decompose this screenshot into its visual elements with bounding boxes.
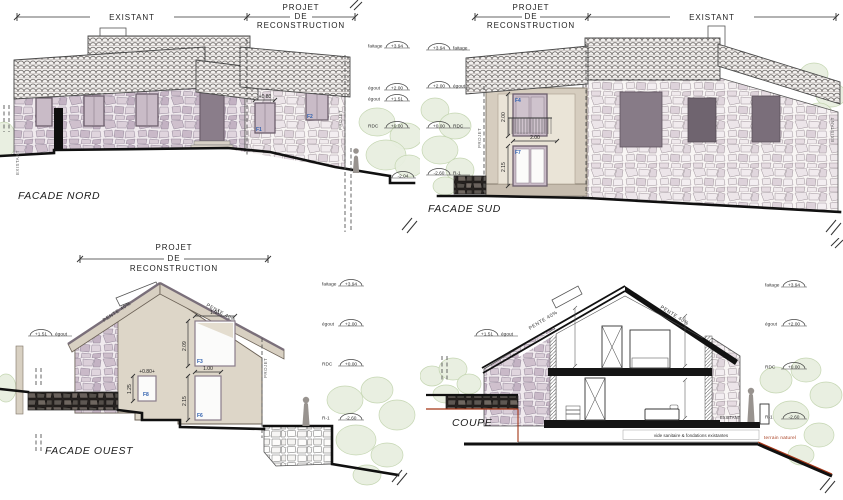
level-label: faitage xyxy=(368,44,383,50)
level-label: R-1 xyxy=(322,416,330,422)
level-value: +2.00 xyxy=(433,84,445,90)
level-marker: égout +2.00 xyxy=(368,84,410,92)
tree xyxy=(359,108,420,177)
coupe-right-wall xyxy=(705,336,740,426)
coupe-terrain: vide sanitaire & fondations existantes t… xyxy=(426,395,832,476)
level-value: -2.60 xyxy=(789,415,800,421)
level-marker: +2.00 égout xyxy=(426,82,470,90)
level-marker: faitage +3.94 xyxy=(368,42,410,50)
level-label: égout xyxy=(453,84,466,90)
facade-ouest-quadrant: PROJET DE RECONSTRUCTION PENTE 40% PENTE… xyxy=(0,238,420,500)
level-value: +2.00 xyxy=(788,322,800,328)
level-value: +0.00 xyxy=(391,124,403,130)
level-label: faitage xyxy=(453,46,468,52)
sud-existing-wall xyxy=(583,78,838,214)
nord-roofs xyxy=(14,28,350,100)
coupe-left-wall xyxy=(484,327,556,426)
level-label: RDC xyxy=(322,362,333,368)
level-value: +3.94 xyxy=(391,44,403,50)
level-marker: égout +2.00 xyxy=(765,320,807,328)
level-value: +0.00 xyxy=(345,362,357,368)
coupe-note-vide: vide sanitaire & fondations existantes xyxy=(654,433,729,438)
nord-side-existant: EXISTANT xyxy=(15,150,20,175)
ouest-side-projet: PROJET xyxy=(263,358,268,378)
nord-title: FACADE NORD xyxy=(18,190,100,202)
architectural-sheet: EXISTANT PROJET DE RECONSTRUCTION xyxy=(0,0,843,500)
level-value: +3.94 xyxy=(433,46,445,52)
nord-projet-label-1: PROJET xyxy=(283,3,320,12)
ouest-header: PROJET DE RECONSTRUCTION xyxy=(77,243,271,273)
coupe-levels: faitage +3.94 égout +2.00 RDC +0.00 R-1 … xyxy=(765,281,807,421)
ouest-projet-label-3: RECONSTRUCTION xyxy=(130,264,218,273)
sud-projet-label-3: RECONSTRUCTION xyxy=(487,21,575,30)
level-label: égout xyxy=(322,322,335,328)
facade-ouest-drawing: PROJET DE RECONSTRUCTION PENTE 40% PENTE… xyxy=(0,238,420,500)
facade-sud-drawing: PROJET DE RECONSTRUCTION EXISTANT xyxy=(420,0,843,238)
facade-nord-quadrant: EXISTANT PROJET DE RECONSTRUCTION xyxy=(0,0,420,238)
ouest-dim-f8-width: +0.80+ xyxy=(139,369,155,375)
sud-window-f7-label: F7 xyxy=(515,150,521,156)
level-label: égout xyxy=(368,86,381,92)
level-label: RDC xyxy=(765,365,776,371)
level-value: +0.00 xyxy=(433,124,445,130)
level-label: égout xyxy=(55,332,68,338)
level-label: égout xyxy=(368,97,381,103)
level-marker: +1.51 égout xyxy=(28,330,72,338)
ouest-window-f8-label: F8 xyxy=(143,392,149,398)
coupe-interior xyxy=(566,306,687,420)
sud-dim-f4-height: 2.00 xyxy=(501,112,507,122)
person-figure xyxy=(302,397,309,426)
sud-projet-label-2: DE xyxy=(525,12,538,21)
level-marker: RDC +0.00 xyxy=(322,360,364,368)
level-value: +1.51 xyxy=(481,332,493,338)
ouest-title: FACADE OUEST xyxy=(45,445,134,457)
ouest-dim-f6-width: 1.00 xyxy=(203,366,213,372)
person-figure xyxy=(353,148,359,173)
ouest-boundaries: PROJET xyxy=(262,338,268,438)
ouest-projet-label-1: PROJET xyxy=(156,243,193,252)
sud-side-existant: EXISTANT xyxy=(830,117,835,142)
level-value: -2.60 xyxy=(346,416,357,422)
ouest-dim-f6-height: 2.15 xyxy=(182,396,188,406)
level-value: +3.94 xyxy=(788,283,800,289)
level-value: +3.94 xyxy=(345,282,357,288)
ouest-window-f3-label: F3 xyxy=(197,359,203,365)
sud-side-projet: PROJET xyxy=(477,128,482,148)
level-marker: égout +2.00 xyxy=(322,320,364,328)
coupe-drawing: PENTE 40% PENTE 40% vide sanitai xyxy=(420,238,843,500)
coupe-quadrant: PENTE 40% PENTE 40% vide sanitai xyxy=(420,238,843,500)
nord-window-f2-label: F2 xyxy=(307,114,313,120)
level-value: +1.51 xyxy=(35,332,47,338)
level-marker: +1.51 égout xyxy=(474,330,518,338)
coupe-pier xyxy=(760,404,769,424)
nord-dim-win-mid: +0.80 xyxy=(259,94,272,100)
nord-side-projet: PROJET xyxy=(338,110,343,130)
level-label: RDC xyxy=(368,124,379,130)
sud-dim-f7-height: 2.15 xyxy=(501,162,507,172)
person-figure xyxy=(747,388,754,422)
facade-nord-drawing: EXISTANT PROJET DE RECONSTRUCTION xyxy=(0,0,420,238)
coupe-note-existant: EXISTANT xyxy=(720,415,741,420)
level-label: R-1 xyxy=(765,415,773,421)
tree xyxy=(327,377,415,485)
level-label: faitage xyxy=(322,282,337,288)
ouest-dim-f3-width: 1.91 xyxy=(210,310,220,316)
level-label: égout xyxy=(501,332,514,338)
ouest-window-f6-label: F6 xyxy=(197,413,203,419)
level-label: égout xyxy=(765,322,778,328)
level-label: R-1 xyxy=(453,171,461,177)
level-label: RDC xyxy=(453,124,464,130)
sud-window-f4-label: F4 xyxy=(515,98,521,104)
level-marker: faitage +3.94 xyxy=(765,281,807,289)
level-label: faitage xyxy=(765,283,780,289)
level-marker: faitage +3.94 xyxy=(322,280,364,288)
ouest-dim-f8-height: 1.25 xyxy=(127,384,133,394)
nord-projet-label-2: DE xyxy=(295,12,308,21)
coupe-title: COUPE xyxy=(452,417,493,429)
level-marker: R-1 -2.60 xyxy=(322,414,364,422)
sud-header: PROJET DE RECONSTRUCTION EXISTANT xyxy=(472,3,839,30)
ouest-projet-label-2: DE xyxy=(168,254,181,263)
level-marker: égout +1.51 xyxy=(368,95,410,103)
nord-window-f1-label: F1 xyxy=(256,127,262,133)
level-value: +2.00 xyxy=(345,322,357,328)
facade-sud-quadrant: PROJET DE RECONSTRUCTION EXISTANT xyxy=(420,0,843,238)
sud-title: FACADE SUD xyxy=(428,203,501,215)
level-value: -2.60 xyxy=(434,171,445,177)
sud-dim-f4-width: 2.00 xyxy=(530,135,540,141)
sud-projet-label-1: PROJET xyxy=(513,3,550,12)
ouest-dim-f3-height: 2.09 xyxy=(182,341,188,351)
ouest-adjacent-wall xyxy=(16,346,23,414)
level-value: -2.04 xyxy=(398,174,409,180)
nord-existant-label: EXISTANT xyxy=(109,13,155,22)
sud-projet-facade: F4 F7 2.00 2.00 2.15 xyxy=(486,88,587,196)
nord-projet-label-3: RECONSTRUCTION xyxy=(257,21,345,30)
level-value: +1.51 xyxy=(391,97,403,103)
level-value: +0.00 xyxy=(788,365,800,371)
coupe-note-terrain: terrain naturel xyxy=(764,435,796,440)
level-marker: +3.94 faitage xyxy=(426,44,470,52)
level-value: +2.00 xyxy=(391,86,403,92)
nord-header: EXISTANT PROJET DE RECONSTRUCTION xyxy=(14,3,358,30)
sud-existant-label: EXISTANT xyxy=(689,13,735,22)
